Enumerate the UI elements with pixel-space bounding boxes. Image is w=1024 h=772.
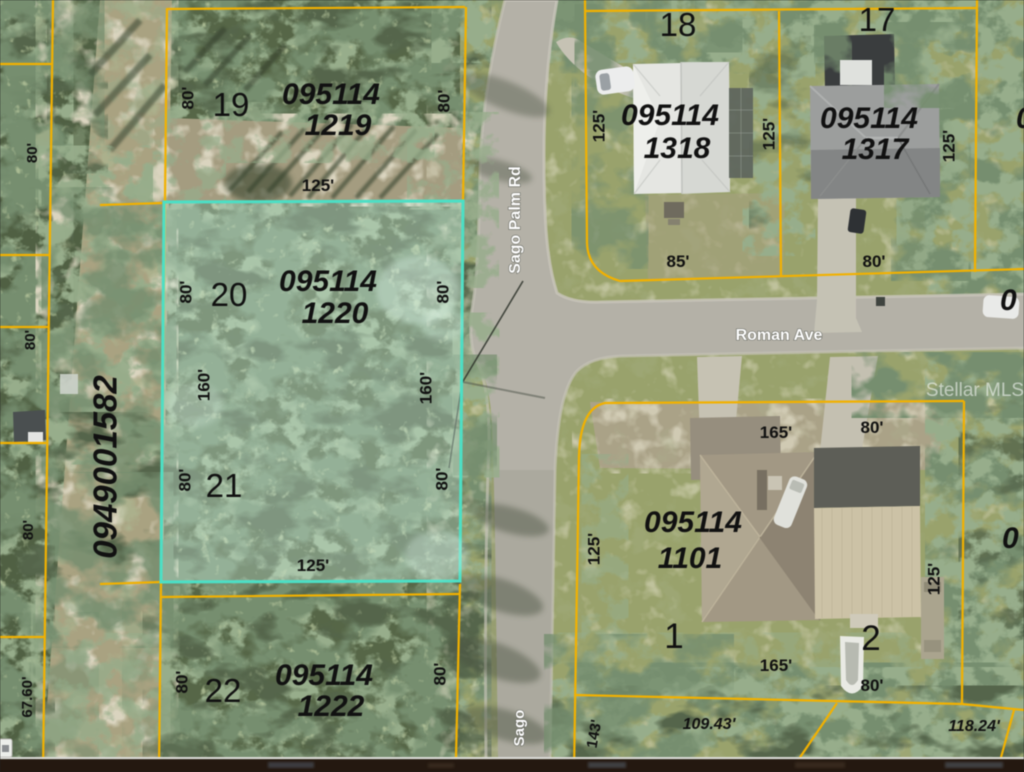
svg-text:80': 80' bbox=[172, 671, 191, 694]
svg-text:17: 17 bbox=[859, 1, 896, 38]
svg-text:0: 0 bbox=[1000, 284, 1017, 317]
svg-text:125': 125' bbox=[584, 533, 603, 565]
svg-text:80': 80' bbox=[434, 90, 453, 113]
svg-text:095114: 095114 bbox=[820, 102, 918, 135]
svg-text:095114: 095114 bbox=[621, 99, 719, 132]
svg-text:160': 160' bbox=[194, 369, 213, 401]
svg-text:80': 80' bbox=[24, 143, 41, 163]
svg-text:20: 20 bbox=[211, 276, 248, 313]
svg-text:118.24': 118.24' bbox=[948, 718, 1001, 735]
svg-text:125': 125' bbox=[297, 556, 329, 575]
svg-text:095114: 095114 bbox=[282, 78, 380, 111]
svg-text:Sago: Sago bbox=[511, 710, 528, 747]
svg-text:125': 125' bbox=[924, 563, 943, 595]
svg-text:1220: 1220 bbox=[302, 297, 369, 330]
svg-text:1: 1 bbox=[664, 617, 683, 656]
svg-text:85': 85' bbox=[667, 252, 690, 271]
svg-text:095114: 095114 bbox=[279, 265, 377, 298]
svg-text:125': 125' bbox=[759, 118, 778, 150]
svg-text:125': 125' bbox=[302, 176, 334, 195]
svg-text:80': 80' bbox=[433, 281, 452, 304]
svg-text:0: 0 bbox=[1016, 102, 1024, 135]
svg-text:21: 21 bbox=[206, 467, 243, 504]
svg-text:80': 80' bbox=[175, 469, 194, 492]
svg-text:Stellar MLS: Stellar MLS bbox=[926, 380, 1024, 401]
svg-text:2: 2 bbox=[861, 619, 880, 658]
svg-text:109.43': 109.43' bbox=[683, 716, 737, 733]
svg-text:19: 19 bbox=[213, 86, 250, 123]
svg-text:160': 160' bbox=[416, 372, 435, 404]
svg-text:1222: 1222 bbox=[298, 690, 365, 723]
svg-text:18: 18 bbox=[660, 6, 697, 43]
svg-text:1101: 1101 bbox=[658, 542, 723, 575]
svg-text:80': 80' bbox=[22, 330, 39, 350]
svg-text:80': 80' bbox=[432, 468, 451, 491]
svg-text:80': 80' bbox=[863, 252, 886, 271]
svg-text:0949001582: 0949001582 bbox=[87, 375, 124, 559]
svg-text:Sago Palm Rd: Sago Palm Rd bbox=[507, 166, 524, 274]
svg-text:22: 22 bbox=[205, 672, 242, 709]
svg-text:80': 80' bbox=[861, 676, 884, 695]
svg-text:67.60': 67.60' bbox=[19, 676, 36, 717]
svg-text:1219: 1219 bbox=[305, 109, 372, 142]
svg-text:80': 80' bbox=[20, 520, 37, 540]
svg-text:1317: 1317 bbox=[842, 133, 910, 166]
svg-text:125': 125' bbox=[589, 110, 608, 142]
svg-text:80': 80' bbox=[430, 663, 449, 686]
svg-text:095114: 095114 bbox=[275, 659, 373, 692]
svg-text:125': 125' bbox=[939, 130, 958, 162]
svg-text:165': 165' bbox=[760, 423, 792, 442]
svg-text:095114: 095114 bbox=[644, 506, 742, 539]
svg-text:80': 80' bbox=[176, 281, 195, 304]
svg-text:165': 165' bbox=[760, 656, 792, 675]
svg-text:80': 80' bbox=[178, 87, 197, 110]
svg-text:0: 0 bbox=[1002, 522, 1019, 555]
svg-text:Roman Ave: Roman Ave bbox=[736, 327, 823, 344]
svg-text:1318: 1318 bbox=[644, 132, 711, 165]
svg-text:80': 80' bbox=[861, 418, 884, 437]
